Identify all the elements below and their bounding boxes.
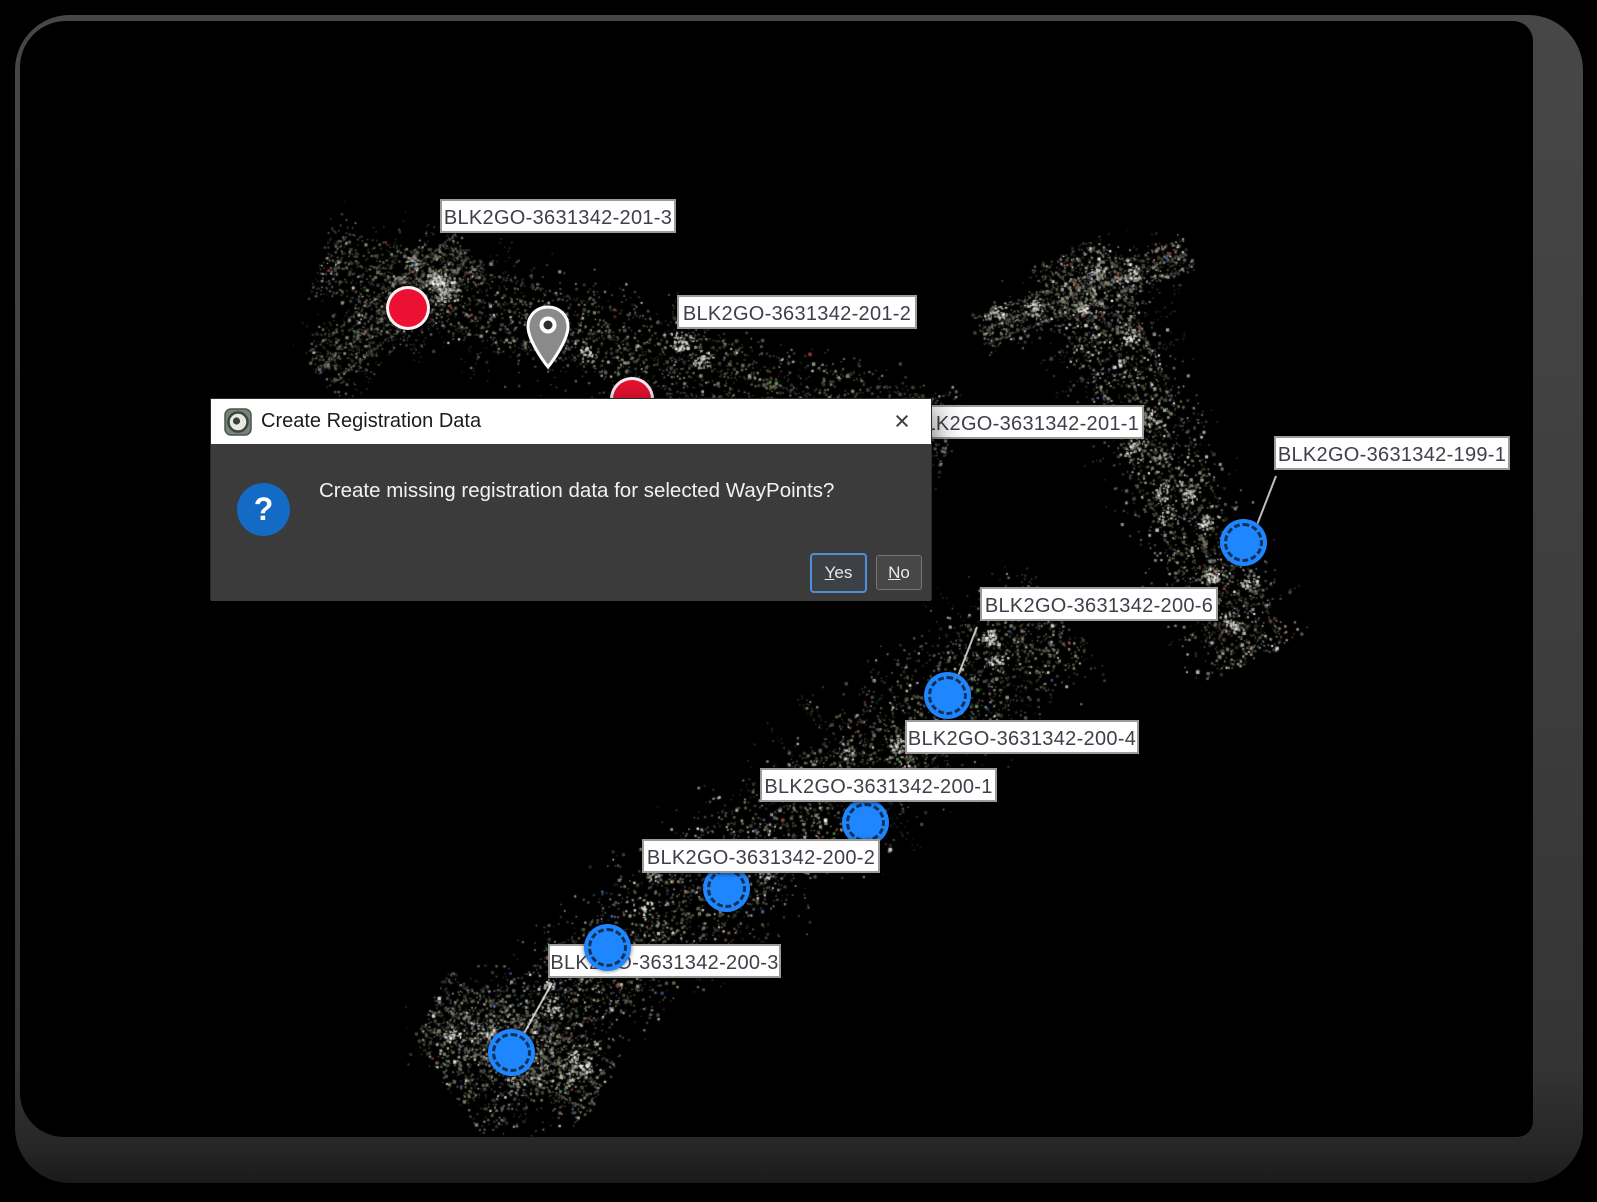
dialog-titlebar[interactable]: Create Registration Data × (211, 399, 931, 444)
app-icon (224, 408, 252, 436)
waypoint-marker-blue[interactable] (584, 924, 631, 971)
no-button-label: No (888, 563, 910, 583)
question-icon: ? (237, 483, 290, 536)
waypoint-label[interactable]: BLK2GO-3631342-200-3 (548, 944, 781, 978)
waypoint-marker-red[interactable] (386, 286, 430, 330)
waypoint-label[interactable]: BLK2GO-3631342-200-2 (642, 839, 880, 873)
dialog-title: Create Registration Data (261, 410, 481, 433)
waypoint-marker-blue[interactable] (488, 1029, 535, 1076)
create-registration-data-dialog: Create Registration Data × ? Create miss… (210, 398, 932, 600)
waypoint-marker-blue[interactable] (924, 672, 971, 719)
yes-button-label: Yes (825, 563, 853, 583)
waypoint-label[interactable]: BLK2GO-3631342-200-6 (980, 587, 1218, 621)
waypoint-label[interactable]: BLK2GO-3631342-199-1 (1274, 436, 1510, 470)
waypoint-label[interactable]: BLK2GO-3631342-201-1 (906, 405, 1144, 439)
waypoint-marker-blue[interactable] (1220, 519, 1267, 566)
waypoint-label[interactable]: BLK2GO-3631342-201-2 (677, 295, 917, 329)
waypoint-label[interactable]: BLK2GO-3631342-200-1 (760, 768, 997, 802)
dialog-message: Create missing registration data for sel… (319, 479, 911, 503)
no-button[interactable]: No (876, 555, 922, 590)
screenshot-root: { "dialog": { "title": "Create Registrat… (0, 0, 1597, 1202)
dialog-body: ? Create missing registration data for s… (211, 444, 931, 601)
close-icon[interactable]: × (885, 399, 919, 444)
waypoint-label[interactable]: BLK2GO-3631342-200-4 (905, 720, 1139, 754)
waypoint-label[interactable]: BLK2GO-3631342-201-3 (440, 199, 676, 233)
waypoint-pin-icon[interactable] (526, 305, 570, 371)
yes-button[interactable]: Yes (810, 553, 867, 593)
